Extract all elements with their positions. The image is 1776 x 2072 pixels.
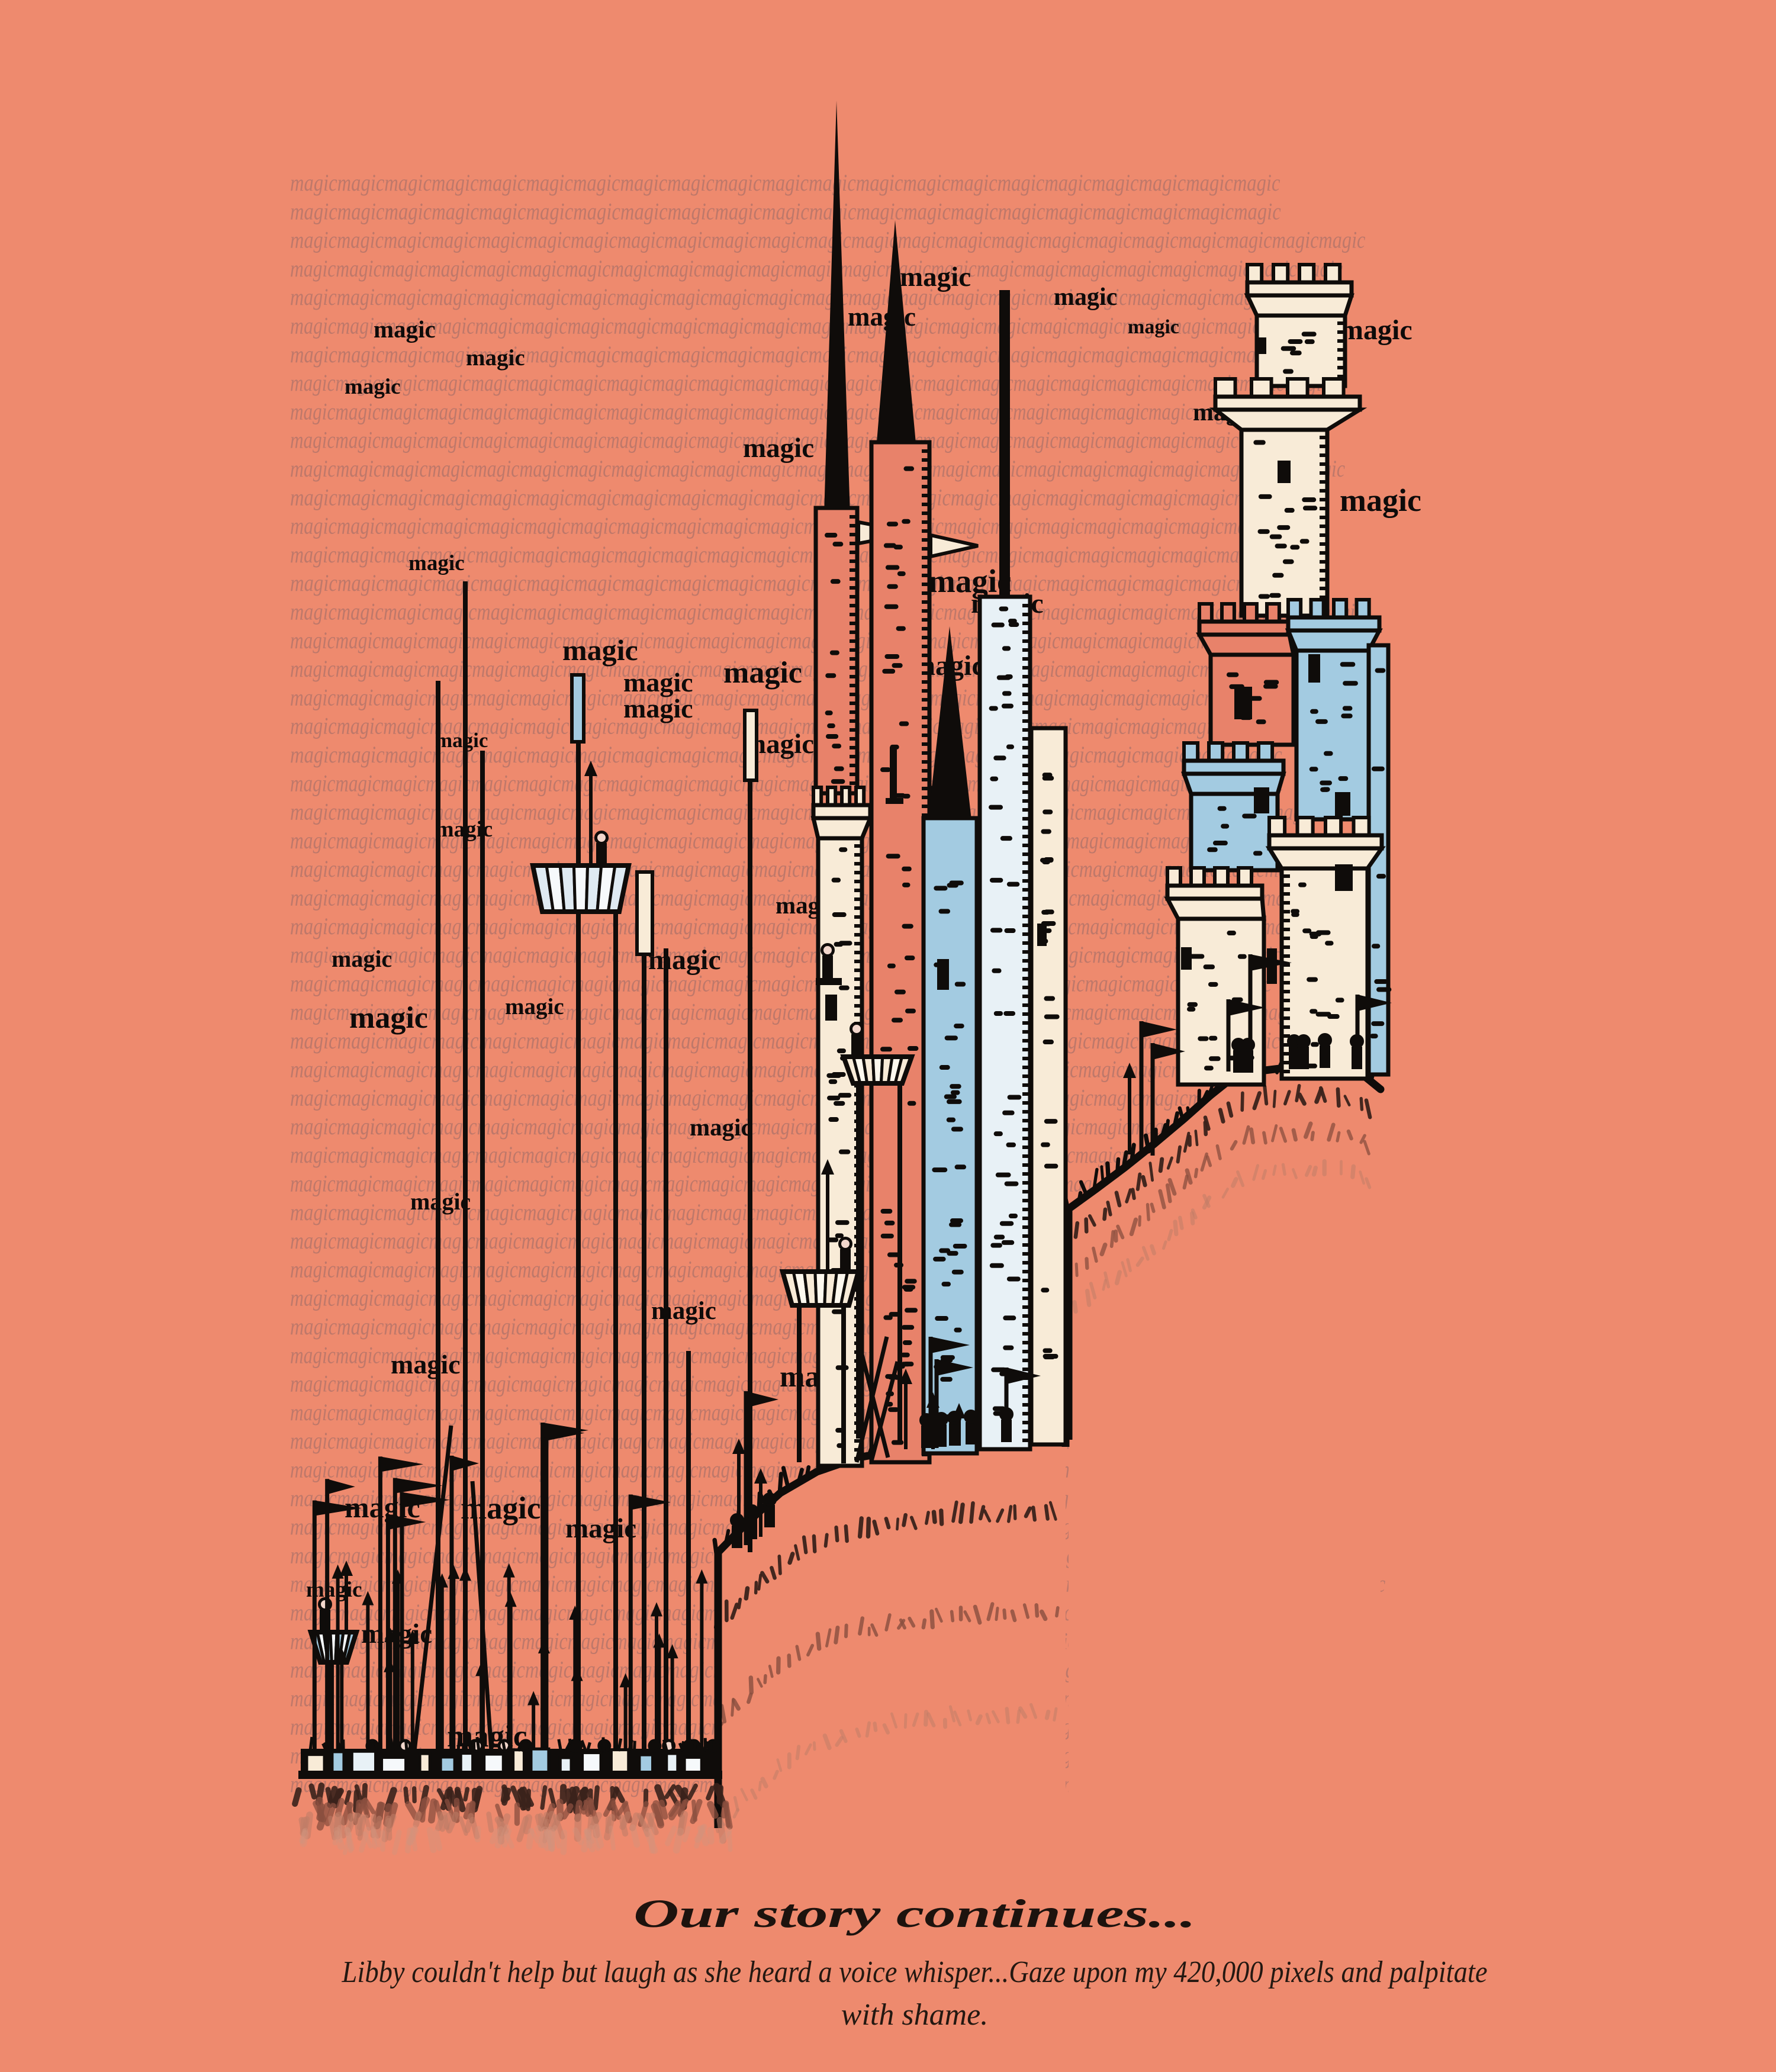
svg-text:magicmagicmagicmagicmagicmagic: magicmagicmagicmagicmagicmagicmagicmagic…: [290, 169, 1280, 196]
svg-text:magicmagicmagicmagicmagicmagic: magicmagicmagicmagicmagicmagicmagicmagic…: [290, 227, 1366, 253]
svg-text:magicmagicmagicmagicmagicmagic: magicmagicmagicmagicmagicmagicmagicmagic…: [290, 398, 1329, 424]
svg-text:magic: magic: [505, 994, 564, 1019]
story-subtitle-line1: Libby couldn't help but laugh as she hea…: [342, 1955, 1488, 1989]
svg-text:magic: magic: [1128, 316, 1179, 338]
svg-text:magic: magic: [648, 944, 721, 976]
svg-text:magic: magic: [408, 551, 465, 575]
svg-text:magic: magic: [723, 656, 802, 690]
svg-text:magicmagicmagicmagicmagicmagic: magicmagicmagicmagicmagicmagicmagicmagic…: [290, 1141, 1260, 1168]
svg-text:magic: magic: [623, 693, 693, 723]
svg-text:magicmagicmagicmagicmagicmagic: magicmagicmagicmagicmagicmagicmagicmagic…: [290, 341, 1327, 368]
svg-text:magic: magic: [332, 945, 392, 972]
svg-text:magic: magic: [466, 345, 525, 371]
artwork-stage: magicmagicmagicmagicmagicmagicmagicmagic…: [0, 0, 1776, 2072]
svg-text:magic: magic: [391, 1349, 461, 1379]
svg-text:magicmagicmagicmagicmagicmagic: magicmagicmagicmagicmagicmagicmagicmagic…: [290, 855, 1311, 882]
svg-text:magic: magic: [651, 1297, 716, 1325]
story-title: Our story continues...: [633, 1891, 1196, 1936]
svg-text:magicmagicmagicmagicmagicmagic: magicmagicmagicmagicmagicmagicmagicmagic…: [290, 513, 1317, 539]
svg-text:magic: magic: [848, 302, 916, 332]
svg-text:magic: magic: [374, 316, 436, 343]
svg-text:magic: magic: [1340, 482, 1421, 518]
svg-text:magic: magic: [900, 262, 971, 292]
svg-text:magic: magic: [349, 1001, 428, 1035]
svg-text:magicmagicmagicmagicmagicmagic: magicmagicmagicmagicmagicmagicmagicmagic…: [290, 255, 1343, 282]
svg-text:magic: magic: [1054, 284, 1117, 311]
svg-text:magicmagicmagicmagicmagicmagic: magicmagicmagicmagicmagicmagicmagicmagic…: [290, 484, 1281, 510]
svg-text:magicmagicmagicmagicmagicmagic: magicmagicmagicmagicmagicmagicmagicmagic…: [290, 284, 1314, 310]
svg-text:magic: magic: [345, 375, 401, 399]
svg-text:magic: magic: [435, 729, 488, 752]
svg-text:magic: magic: [562, 633, 638, 667]
story-subtitle-line2: with shame.: [841, 1998, 988, 2032]
svg-text:magic: magic: [1340, 314, 1413, 346]
svg-text:magicmagicmagicmagicmagicmagic: magicmagicmagicmagicmagicmagicmagicmagic…: [290, 627, 1332, 654]
svg-text:magic: magic: [743, 433, 814, 464]
svg-text:magicmagicmagicmagicmagicmagic: magicmagicmagicmagicmagicmagicmagicmagic…: [290, 455, 1345, 482]
svg-text:magicmagicmagicmagicmagicmagic: magicmagicmagicmagicmagicmagicmagicmagic…: [290, 369, 1330, 396]
svg-text:magic: magic: [690, 1114, 752, 1141]
castle-illustration: magicmagicmagicmagicmagicmagicmagicmagic…: [0, 0, 1776, 2072]
svg-text:magicmagicmagicmagicmagicmagic: magicmagicmagicmagicmagicmagicmagicmagic…: [290, 198, 1281, 224]
svg-text:magic: magic: [410, 1188, 471, 1215]
